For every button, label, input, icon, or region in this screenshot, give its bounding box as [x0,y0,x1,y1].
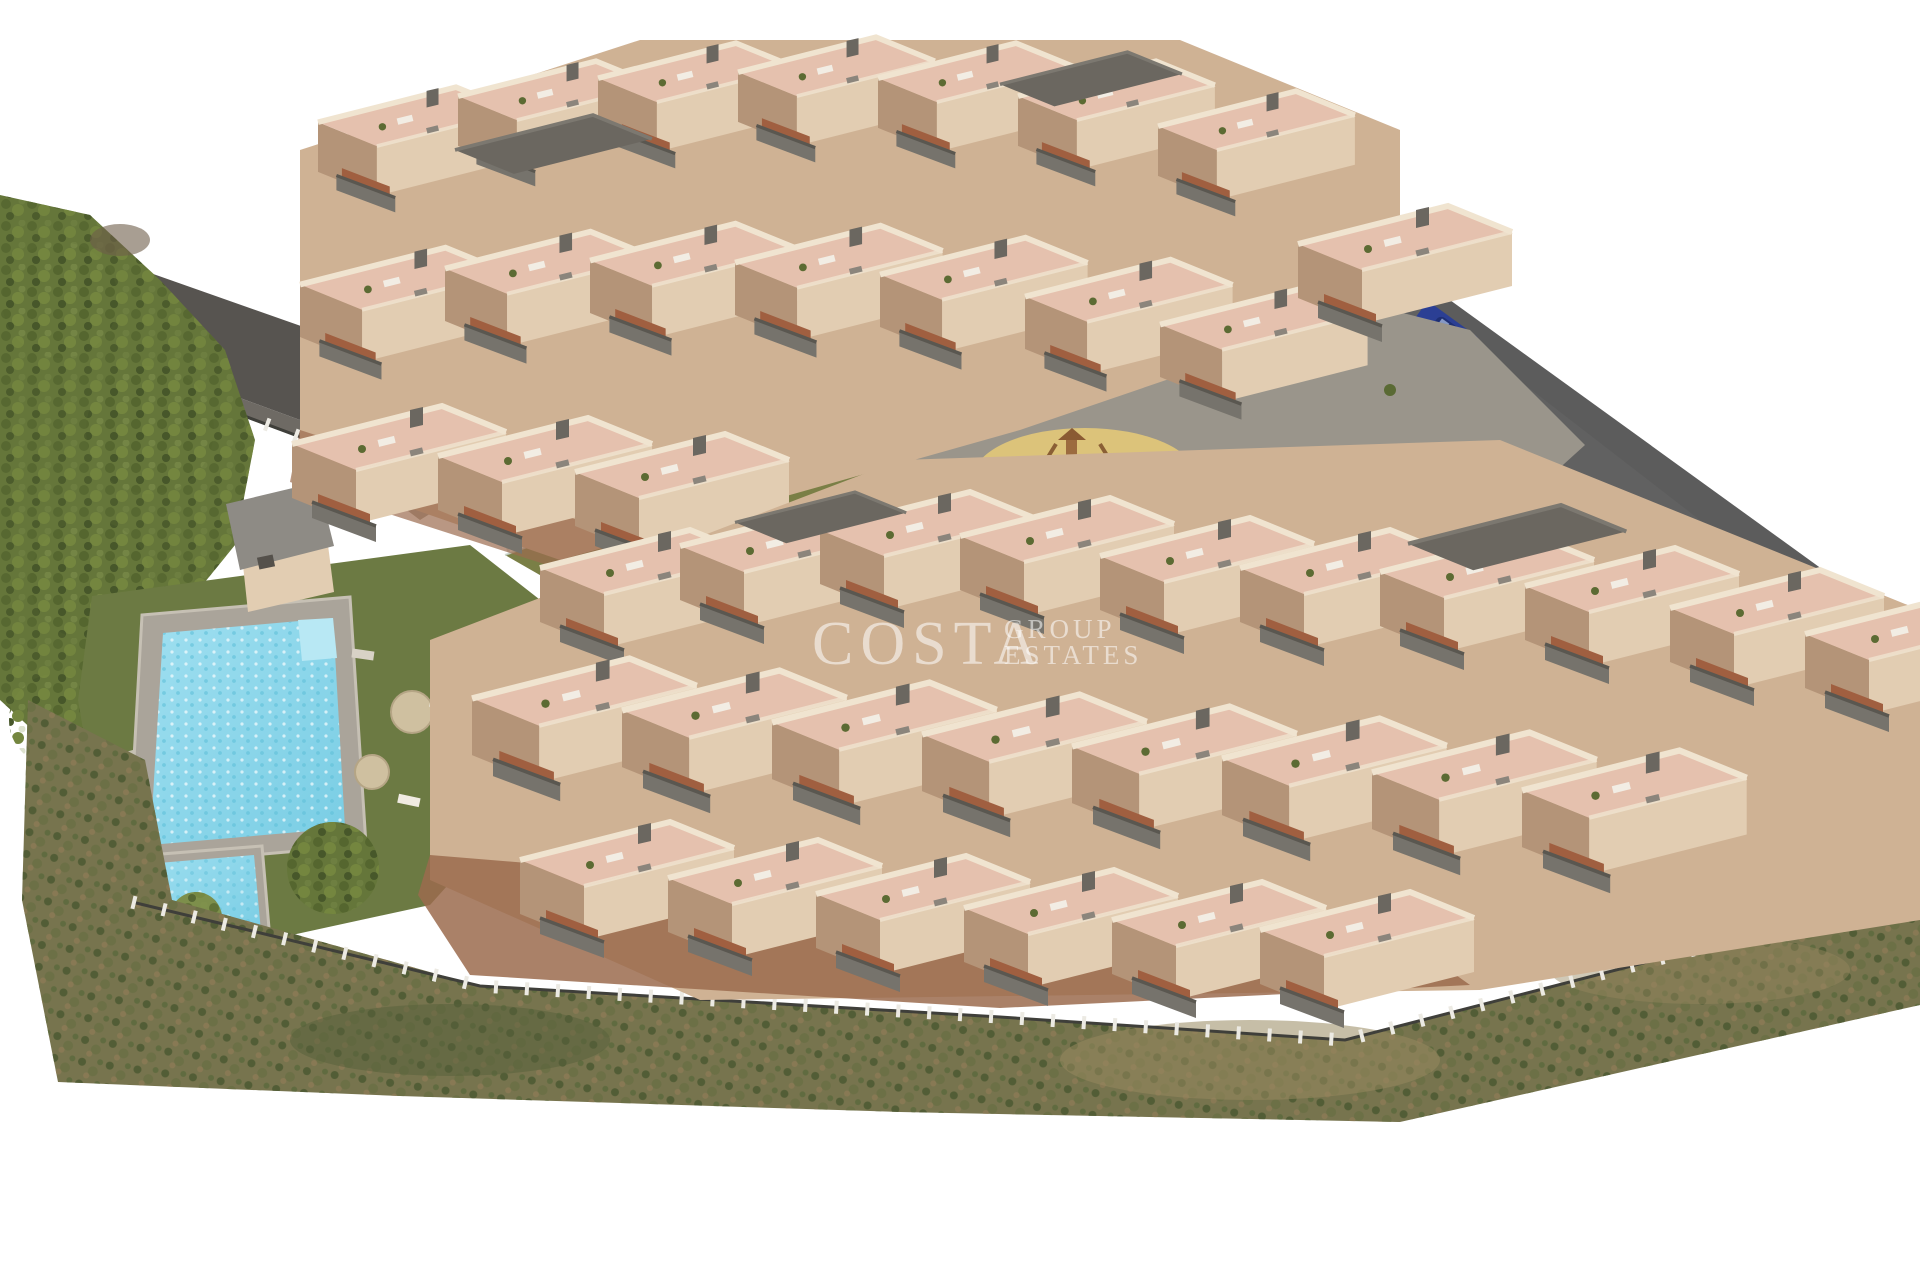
watermark: COSTA GROUP ESTATES [812,610,1142,678]
umbrella [391,691,433,733]
umbrella [355,755,389,789]
render-image: COSTA GROUP ESTATES [0,0,1920,1280]
watermark-estates: ESTATES [1004,640,1142,670]
aerial-render-scene: COSTA GROUP ESTATES [0,0,1920,1280]
pool-steps [298,618,337,661]
planter [1384,384,1396,396]
